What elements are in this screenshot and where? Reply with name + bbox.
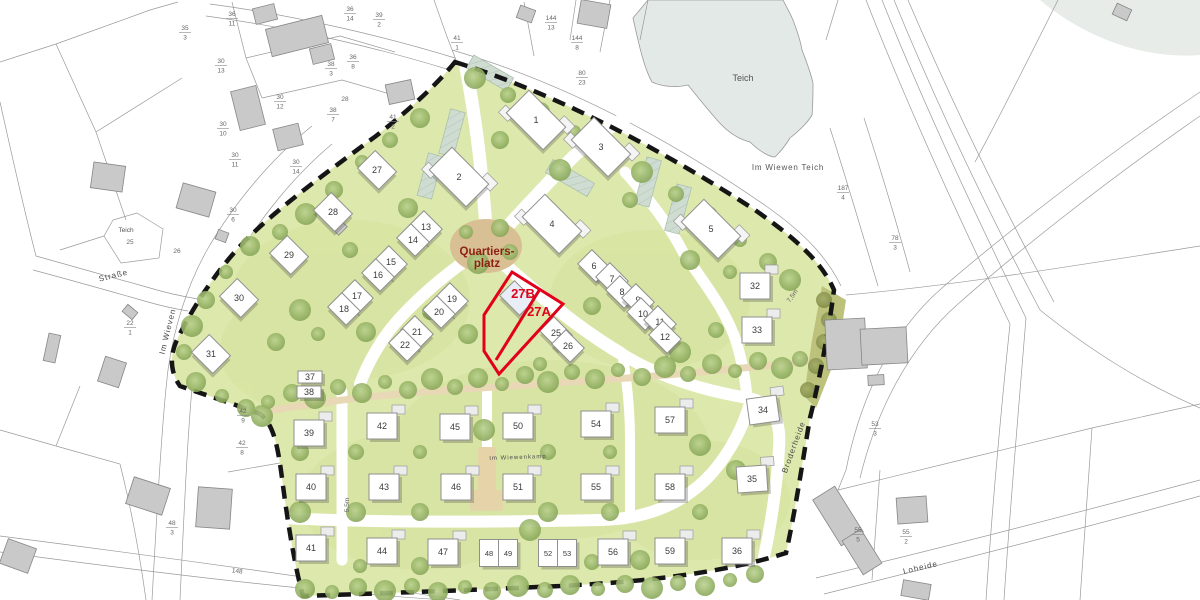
lot-house: 38 (297, 386, 324, 401)
lot-number: 27 (372, 165, 382, 175)
lot-number: 53 (563, 549, 571, 558)
lot-number: 15 (386, 257, 396, 267)
tree (251, 405, 273, 427)
tree (411, 557, 429, 575)
small-pond-label: Teich (118, 227, 134, 234)
tree (537, 371, 559, 393)
lot-number: 58 (665, 482, 675, 492)
lot-number: 30 (234, 293, 244, 303)
tree (411, 503, 429, 521)
tree (708, 322, 724, 338)
tree (680, 250, 700, 270)
tree (311, 327, 325, 341)
tree (633, 368, 651, 386)
tree (176, 344, 192, 360)
site-plan-svg: 1234567891011121314151617181920212225262… (0, 0, 1200, 600)
lot-number: 45 (450, 422, 460, 432)
svg-text:10: 10 (219, 131, 227, 138)
tree (533, 357, 547, 371)
tree (491, 131, 509, 149)
lot-number: 1 (533, 115, 538, 125)
svg-text:13: 13 (217, 68, 225, 75)
tree (267, 333, 285, 351)
tree (458, 580, 472, 594)
tree (399, 381, 417, 399)
lot-number: 41 (306, 543, 316, 553)
lot-number: 44 (377, 546, 387, 556)
svg-text:3: 3 (329, 71, 333, 78)
tree (186, 372, 206, 392)
wiewenkamp-plaza (470, 490, 503, 511)
tree (689, 434, 711, 456)
tree (491, 219, 509, 237)
tree (746, 565, 764, 583)
lot-number: 54 (591, 419, 601, 429)
highlight-plot-label: 27B (511, 286, 535, 301)
lot-number: 38 (304, 387, 314, 397)
svg-text:22: 22 (126, 320, 134, 327)
svg-text:13: 13 (547, 25, 555, 32)
tree (603, 445, 617, 459)
lot-number: 47 (438, 547, 448, 557)
tree (356, 322, 376, 342)
tree (723, 573, 737, 587)
svg-text:1: 1 (455, 45, 459, 52)
svg-text:6: 6 (231, 217, 235, 224)
tree (447, 379, 463, 395)
map-note: 26 (173, 248, 181, 255)
tree (349, 578, 367, 596)
lot-number: 20 (434, 307, 444, 317)
svg-text:80: 80 (578, 70, 586, 77)
existing-building (577, 0, 611, 28)
map-note: 148 (231, 567, 243, 575)
tree (468, 368, 488, 388)
svg-text:78: 78 (891, 235, 899, 242)
svg-text:14: 14 (292, 169, 300, 176)
tree (348, 444, 364, 460)
highlight-plot-label: 27A (527, 304, 551, 319)
svg-text:36: 36 (349, 54, 357, 61)
svg-text:23: 23 (578, 80, 586, 87)
svg-text:8: 8 (240, 450, 244, 457)
svg-text:30: 30 (276, 94, 284, 101)
lot-number: 26 (563, 341, 573, 351)
svg-text:144: 144 (546, 15, 557, 22)
tree (771, 357, 793, 379)
svg-text:3: 3 (170, 530, 174, 537)
tree (695, 576, 715, 596)
tree (421, 368, 443, 390)
tree (342, 242, 358, 258)
svg-text:3: 3 (893, 245, 897, 252)
lot-number: 40 (306, 482, 316, 492)
svg-text:30: 30 (217, 58, 225, 65)
lot-number: 37 (305, 372, 315, 382)
lot-number: 21 (412, 327, 422, 337)
svg-text:9: 9 (241, 418, 245, 425)
lot-number: 13 (421, 222, 431, 232)
lot-number: 32 (750, 281, 760, 291)
tree (516, 366, 534, 384)
svg-text:55: 55 (902, 529, 910, 536)
lot-number: 48 (485, 549, 493, 558)
tree (325, 585, 339, 599)
svg-text:3: 3 (873, 431, 877, 438)
tree (459, 225, 473, 239)
svg-text:2: 2 (391, 124, 395, 131)
svg-text:144: 144 (572, 35, 583, 42)
lot-number: 4 (549, 219, 554, 229)
svg-text:30: 30 (292, 159, 300, 166)
svg-text:53: 53 (871, 421, 879, 428)
lot-house: 49 (499, 540, 521, 570)
lot-number: 49 (504, 549, 512, 558)
quartiersplatz-label: platz (474, 258, 500, 270)
svg-text:8: 8 (351, 64, 355, 71)
svg-text:30: 30 (231, 152, 239, 159)
existing-building (896, 496, 928, 524)
tree (601, 503, 619, 521)
svg-text:2: 2 (377, 22, 381, 29)
lot-number: 52 (544, 549, 552, 558)
tree (473, 419, 495, 441)
svg-text:11: 11 (229, 21, 236, 28)
tree (560, 575, 580, 595)
lot-number: 36 (732, 546, 742, 556)
svg-text:30: 30 (219, 121, 227, 128)
pond-field-label: Im Wiewen Teich (752, 163, 824, 172)
tree (630, 550, 650, 570)
lot-number: 56 (608, 547, 618, 557)
lot-number: 34 (758, 405, 768, 415)
tree (197, 291, 215, 309)
tree (622, 192, 638, 208)
svg-text:11: 11 (232, 162, 239, 169)
lot-number: 46 (451, 482, 461, 492)
tree (404, 578, 420, 594)
lot-number: 3 (598, 142, 603, 152)
tree (215, 389, 229, 403)
tree (240, 236, 260, 256)
tree (585, 369, 605, 389)
lot-number: 18 (339, 304, 349, 314)
tree (591, 582, 605, 596)
svg-text:41: 41 (453, 35, 461, 42)
svg-text:42: 42 (238, 440, 246, 447)
pond-label: Teich (732, 73, 753, 83)
lot-number: 6 (591, 261, 596, 271)
tree (549, 159, 571, 181)
lot-number: 50 (513, 421, 523, 431)
svg-text:38: 38 (329, 107, 337, 114)
existing-building (196, 487, 233, 529)
tree (538, 502, 558, 522)
tree (564, 364, 580, 380)
svg-text:2: 2 (904, 539, 908, 546)
map-note: 25 (126, 239, 134, 246)
tree (641, 577, 663, 599)
lot-number: 5 (708, 224, 713, 234)
tree (519, 519, 541, 541)
svg-text:42: 42 (239, 408, 247, 415)
tree (792, 351, 808, 367)
svg-text:35: 35 (181, 25, 189, 32)
tree (353, 559, 367, 573)
svg-text:39: 39 (375, 12, 383, 19)
tree (616, 575, 634, 593)
tree (500, 87, 516, 103)
tree (464, 67, 486, 89)
tree (352, 383, 372, 403)
existing-building (90, 162, 125, 192)
tree (537, 582, 553, 598)
lot-house: 53 (558, 540, 580, 570)
svg-text:1: 1 (128, 330, 132, 337)
lot-number: 42 (377, 421, 387, 431)
tree (692, 504, 708, 520)
existing-building (868, 375, 885, 386)
svg-text:41: 41 (389, 114, 397, 121)
tree (749, 352, 767, 370)
tree (495, 377, 509, 391)
tree (289, 299, 311, 321)
tree (398, 198, 418, 218)
tree (458, 324, 478, 344)
lot-number: 35 (747, 474, 757, 484)
tree (723, 265, 737, 279)
map-note: 28 (341, 96, 349, 103)
tree (631, 161, 653, 183)
tree (680, 366, 696, 382)
lot-number: 22 (400, 340, 410, 350)
svg-text:187: 187 (838, 185, 849, 192)
svg-text:14: 14 (346, 16, 354, 23)
lot-number: 33 (752, 325, 762, 335)
svg-text:30: 30 (229, 207, 237, 214)
tree (289, 501, 311, 523)
tree (295, 579, 315, 599)
lot-number: 39 (304, 428, 314, 438)
svg-text:38: 38 (327, 61, 335, 68)
svg-text:36: 36 (346, 6, 354, 13)
tree (728, 364, 742, 378)
lot-number: 29 (284, 250, 294, 260)
site-plan-canvas[interactable]: 1234567891011121314151617181920212225262… (0, 0, 1200, 600)
tree (702, 354, 722, 374)
svg-text:3: 3 (183, 35, 187, 42)
tree (219, 265, 233, 279)
tree (295, 203, 317, 225)
svg-text:36: 36 (228, 11, 236, 18)
lot-number: 51 (513, 482, 523, 492)
svg-text:55: 55 (854, 527, 862, 534)
lot-number: 57 (665, 415, 675, 425)
lot-number: 19 (447, 294, 457, 304)
lot-number: 16 (373, 270, 383, 280)
quartiersplatz-label: Quartiers- (460, 246, 515, 258)
tree (668, 186, 684, 202)
tree (507, 575, 529, 597)
lot-number: 17 (352, 291, 362, 301)
tree (413, 445, 427, 459)
tree (410, 108, 430, 128)
tree (611, 363, 625, 377)
svg-text:7: 7 (331, 117, 335, 124)
lot-number: 59 (665, 546, 675, 556)
svg-text:12: 12 (276, 104, 284, 111)
tree (181, 315, 203, 337)
lot-house: 37 (298, 371, 325, 386)
tree (583, 297, 601, 315)
svg-text:4: 4 (841, 195, 845, 202)
svg-text:48: 48 (168, 520, 176, 527)
lot-number: 14 (408, 235, 418, 245)
lot-number: 12 (660, 332, 670, 342)
lot-number: 28 (328, 207, 338, 217)
existing-building (860, 327, 908, 365)
lot-number: 43 (379, 482, 389, 492)
tree (779, 269, 801, 291)
svg-text:8: 8 (575, 45, 579, 52)
tree (483, 582, 501, 600)
tree (378, 375, 392, 389)
map-note: 5,5m (344, 498, 351, 512)
svg-text:5: 5 (856, 537, 860, 544)
tree (382, 132, 398, 148)
lot-number: 2 (456, 172, 461, 182)
lot-number: 55 (591, 482, 601, 492)
lot-number: 31 (206, 349, 216, 359)
tree (670, 575, 686, 591)
tree (330, 379, 346, 395)
